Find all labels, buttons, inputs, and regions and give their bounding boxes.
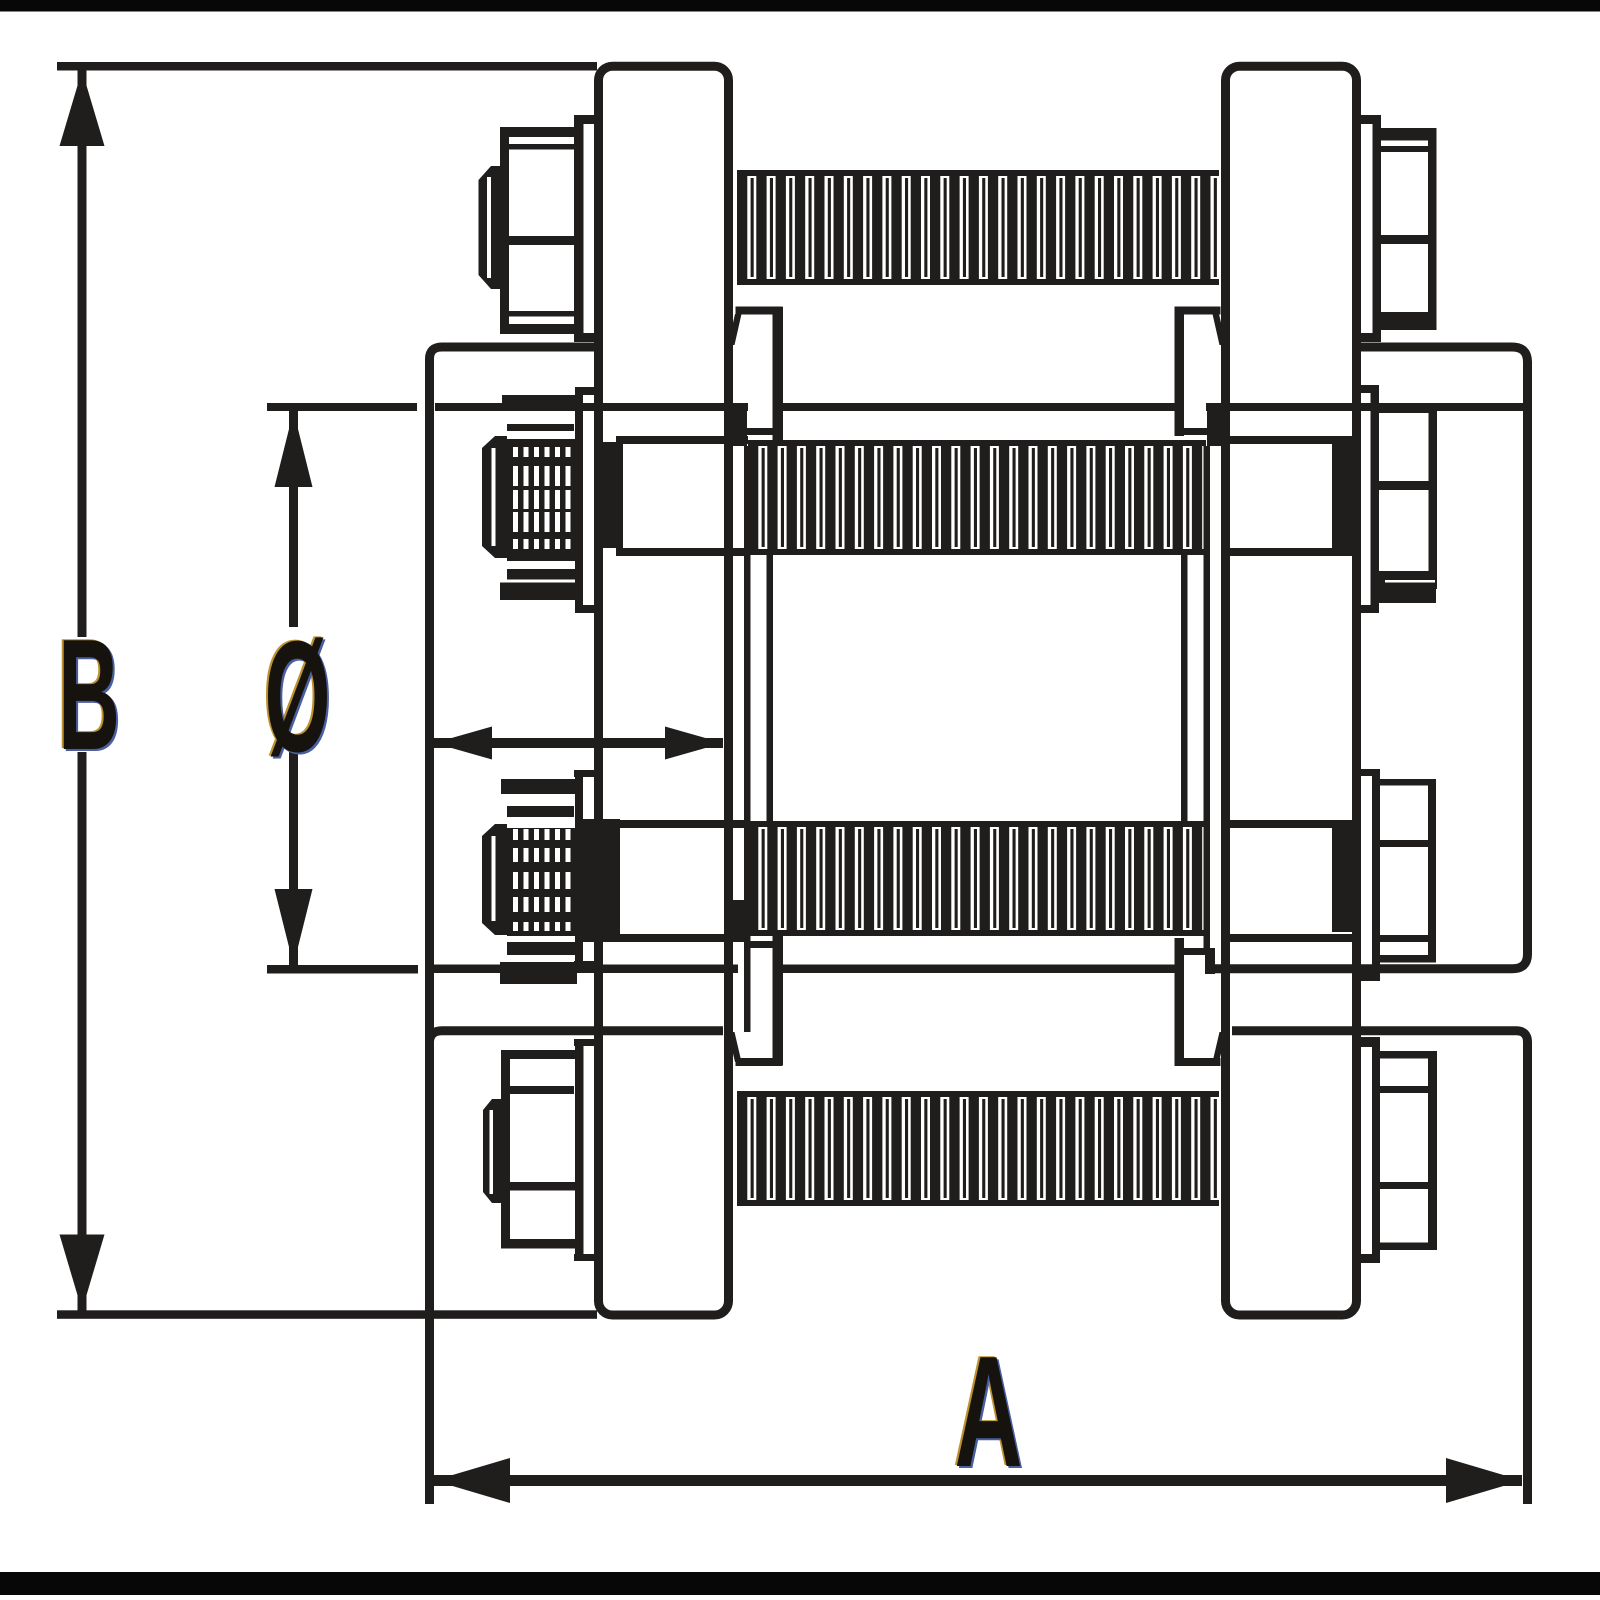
svg-text:Ø: Ø — [265, 609, 331, 785]
svg-text:A: A — [955, 1324, 1023, 1500]
svg-text:B: B — [58, 607, 120, 783]
